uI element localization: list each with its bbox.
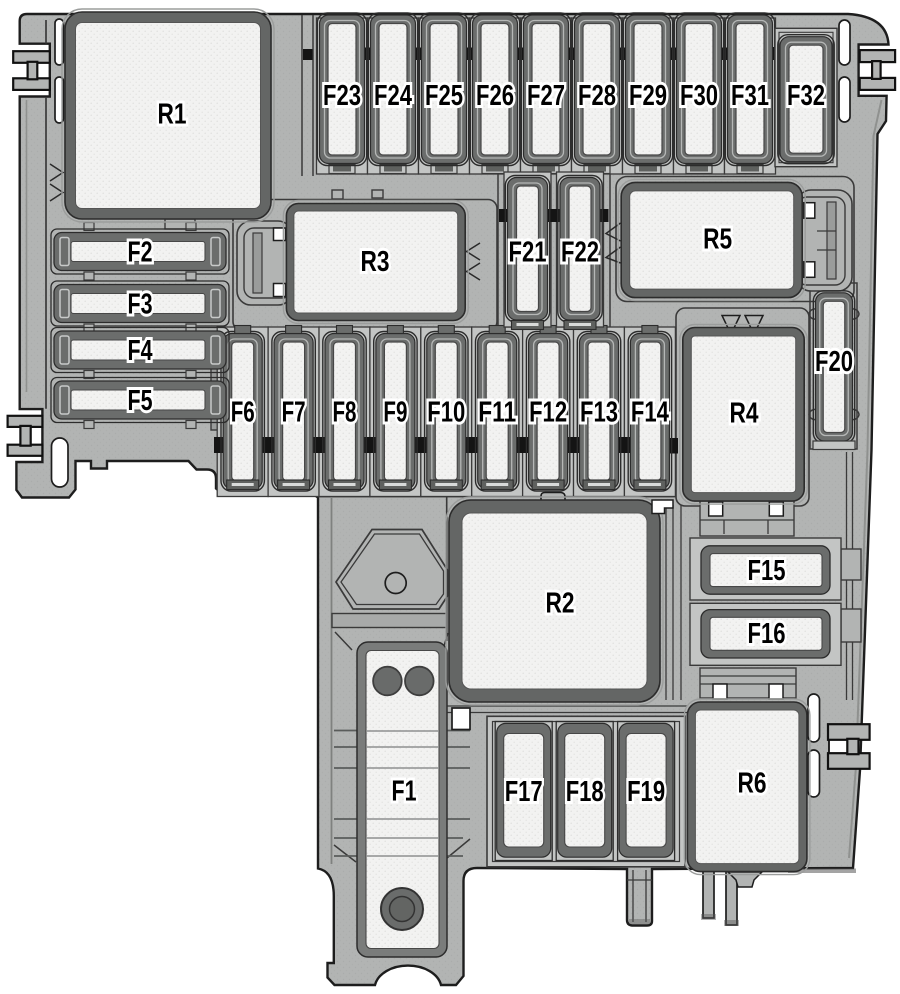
svg-text:R1: R1: [158, 99, 187, 131]
svg-text:F27: F27: [527, 80, 565, 112]
svg-text:F26: F26: [476, 80, 514, 112]
svg-text:R2: R2: [546, 588, 575, 620]
svg-text:F5: F5: [128, 385, 153, 417]
svg-text:R5: R5: [703, 224, 732, 256]
svg-text:F15: F15: [748, 555, 786, 587]
svg-text:F25: F25: [425, 80, 463, 112]
svg-text:F18: F18: [566, 776, 604, 808]
svg-text:F21: F21: [509, 237, 547, 269]
svg-text:F14: F14: [631, 397, 669, 429]
svg-text:R4: R4: [730, 398, 759, 430]
svg-text:F13: F13: [580, 397, 618, 429]
svg-text:F17: F17: [505, 776, 543, 808]
svg-text:F30: F30: [680, 80, 718, 112]
svg-text:F29: F29: [629, 80, 667, 112]
svg-text:F3: F3: [128, 289, 153, 321]
svg-text:F7: F7: [282, 397, 306, 429]
svg-text:F2: F2: [128, 237, 153, 269]
svg-text:F32: F32: [787, 80, 825, 112]
svg-text:F8: F8: [333, 397, 357, 429]
svg-text:F22: F22: [561, 237, 599, 269]
svg-text:F16: F16: [748, 618, 786, 650]
svg-text:F6: F6: [231, 397, 255, 429]
svg-text:F20: F20: [815, 346, 853, 378]
svg-text:F24: F24: [374, 80, 412, 112]
svg-text:F10: F10: [427, 397, 465, 429]
svg-text:F23: F23: [323, 80, 361, 112]
svg-text:F9: F9: [383, 397, 407, 429]
svg-text:F4: F4: [128, 335, 153, 367]
svg-text:F28: F28: [578, 80, 616, 112]
svg-text:R6: R6: [738, 768, 767, 800]
svg-text:F1: F1: [392, 776, 417, 808]
svg-text:F12: F12: [529, 397, 567, 429]
svg-text:F31: F31: [731, 80, 769, 112]
svg-text:F11: F11: [478, 397, 516, 429]
svg-text:F19: F19: [627, 776, 665, 808]
svg-text:R3: R3: [361, 246, 390, 278]
